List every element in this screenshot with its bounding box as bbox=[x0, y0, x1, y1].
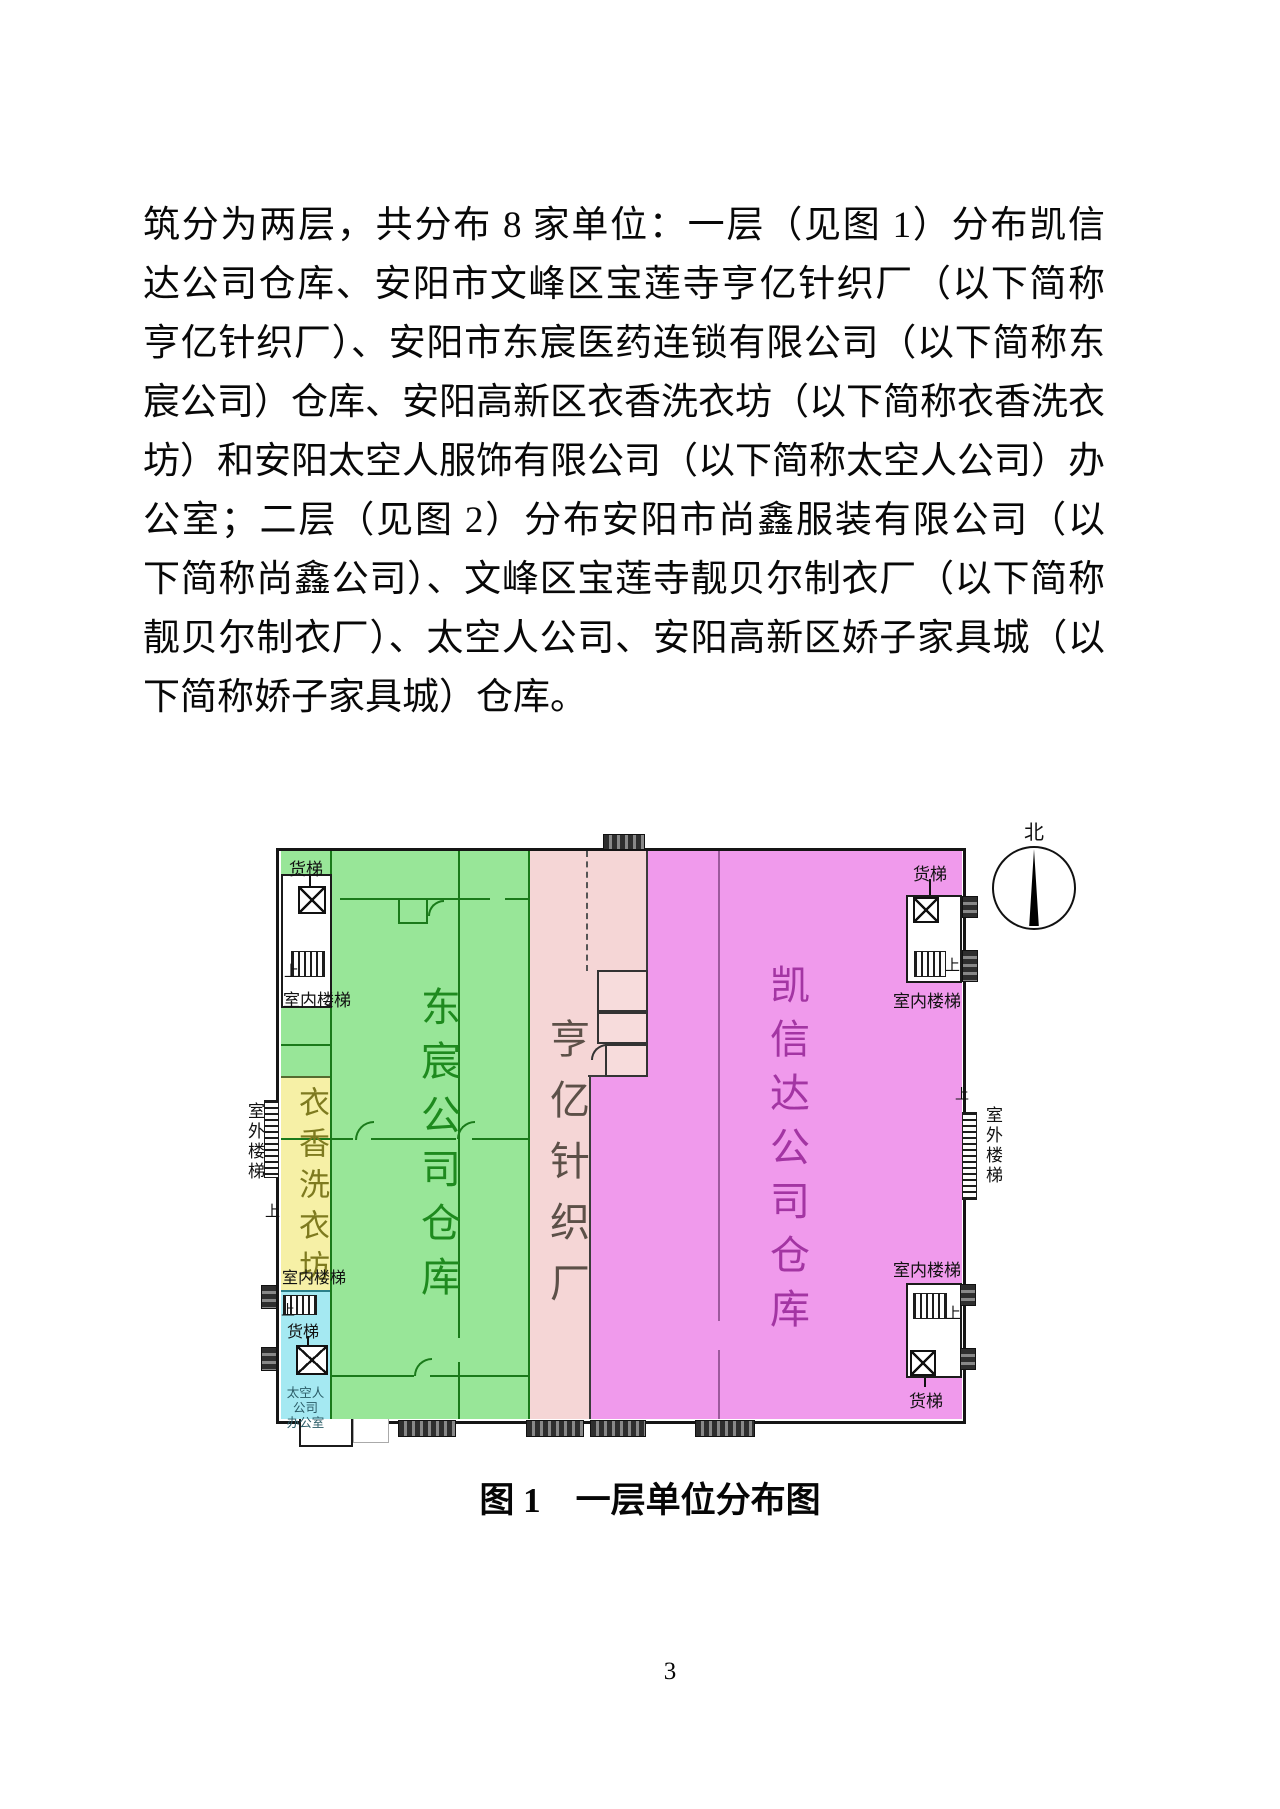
paragraph-line: 亨亿针织厂）、安阳市东宸医药连锁有限公司（以下简称东 bbox=[143, 314, 1105, 373]
loading-dock bbox=[261, 1285, 277, 1309]
label-outdoor-stairs: 室外楼梯 bbox=[980, 1106, 1005, 1186]
paragraph-line: 坊）和安阳太空人服饰有限公司（以下简称太空人公司）办 bbox=[143, 432, 1105, 491]
loading-dock bbox=[398, 1420, 456, 1437]
dashed-wall bbox=[586, 851, 588, 971]
loading-dock bbox=[526, 1420, 584, 1437]
freight-elevator-icon bbox=[298, 886, 326, 914]
loading-dock bbox=[962, 950, 978, 982]
document-page: 筑分为两层，共分布 8 家单位：一层（见图 1）分布凯信 达公司仓库、安阳市文峰… bbox=[0, 0, 1280, 1809]
loading-dock bbox=[960, 1348, 976, 1370]
paragraph-line: 靓贝尔制衣厂）、太空人公司、安阳高新区娇子家具城（以 bbox=[143, 609, 1105, 668]
label-up: 上 bbox=[284, 960, 299, 981]
label-dongchen: 东宸公司仓库 bbox=[408, 986, 466, 1310]
pink-room bbox=[597, 970, 648, 1012]
label-kaixinda: 凯信达公司仓库 bbox=[757, 964, 815, 1342]
paragraph-line: 下简称尚鑫公司）、文峰区宝莲寺靓贝尔制衣厂（以下简称 bbox=[143, 550, 1105, 609]
small-room bbox=[398, 898, 428, 924]
wall bbox=[430, 1375, 530, 1377]
outdoor-stairs-icon bbox=[962, 1112, 977, 1200]
paragraph-line: 筑分为两层，共分布 8 家单位：一层（见图 1）分布凯信 bbox=[143, 196, 1105, 255]
wall bbox=[458, 1362, 460, 1419]
label-up: 上 bbox=[265, 1200, 280, 1221]
leader-line bbox=[924, 1378, 926, 1387]
loading-dock bbox=[590, 1420, 646, 1437]
building-outline bbox=[276, 848, 966, 1424]
wall bbox=[528, 851, 530, 1419]
label-yixiang: 衣香洗衣坊 bbox=[289, 1086, 334, 1291]
stairs-icon bbox=[913, 1293, 947, 1319]
label-freight-elevator: 货梯 bbox=[909, 1387, 943, 1412]
wall bbox=[472, 1138, 530, 1140]
compass-north-label: 北 bbox=[1014, 816, 1054, 845]
freight-elevator-icon bbox=[910, 1350, 936, 1376]
loading-dock bbox=[261, 1347, 277, 1371]
paragraph-line: 达公司仓库、安阳市文峰区宝莲寺亨亿针织厂（以下简称 bbox=[143, 255, 1105, 314]
page-number: 3 bbox=[145, 1658, 1195, 1686]
pink-room bbox=[597, 1012, 648, 1044]
label-up: 上 bbox=[945, 954, 960, 975]
leader-line bbox=[307, 1336, 309, 1345]
loading-dock bbox=[960, 1284, 976, 1306]
label-up: 上 bbox=[946, 1302, 961, 1323]
loading-dock bbox=[962, 896, 978, 918]
leader-line bbox=[929, 879, 931, 895]
compass-icon bbox=[992, 846, 1076, 930]
leader-line bbox=[309, 876, 311, 886]
label-indoor-stairs: 室内楼梯 bbox=[283, 986, 351, 1011]
label-up: 上 bbox=[281, 1300, 295, 1320]
paragraph-line: 公室；二层（见图 2）分布安阳市尚鑫服装有限公司（以 bbox=[143, 491, 1105, 550]
wall bbox=[281, 1076, 330, 1078]
stairs-icon bbox=[914, 951, 946, 977]
label-indoor-stairs: 室内楼梯 bbox=[893, 987, 961, 1012]
label-hengyi: 亨亿针织厂 bbox=[537, 1018, 595, 1323]
label-taikongren-line1: 太空人公司 bbox=[281, 1386, 330, 1416]
entrance-step bbox=[353, 1419, 389, 1443]
north-needle-icon bbox=[992, 846, 1076, 930]
loading-dock bbox=[695, 1420, 755, 1437]
wall bbox=[718, 851, 720, 1321]
label-outdoor-stairs: 室外楼梯 bbox=[242, 1102, 267, 1182]
wall bbox=[718, 1350, 720, 1419]
freight-elevator-icon bbox=[913, 897, 939, 923]
loading-dock bbox=[603, 834, 645, 850]
wall bbox=[281, 1044, 330, 1046]
label-taikongren-line2: 办公室 bbox=[281, 1416, 330, 1431]
body-paragraph: 筑分为两层，共分布 8 家单位：一层（见图 1）分布凯信 达公司仓库、安阳市文峰… bbox=[143, 196, 1105, 727]
figure-caption: 图 1 一层单位分布图 bbox=[145, 1472, 1155, 1523]
wall bbox=[505, 898, 530, 900]
label-up: 上 bbox=[955, 1084, 969, 1104]
paragraph-line: 下简称娇子家具城）仓库。 bbox=[143, 668, 1105, 727]
label-indoor-stairs: 室内楼梯 bbox=[893, 1256, 961, 1281]
wall bbox=[332, 1375, 414, 1377]
freight-elevator-icon bbox=[296, 1345, 328, 1375]
pink-room bbox=[605, 1044, 648, 1077]
paragraph-line: 宸公司）仓库、安阳高新区衣香洗衣坊（以下简称衣香洗衣 bbox=[143, 373, 1105, 432]
label-taikongren: 太空人公司 办公室 bbox=[281, 1386, 330, 1431]
label-indoor-stairs: 室内楼梯 bbox=[282, 1264, 346, 1288]
label-freight-elevator: 货梯 bbox=[289, 855, 323, 880]
label-freight-elevator: 货梯 bbox=[287, 1318, 319, 1342]
